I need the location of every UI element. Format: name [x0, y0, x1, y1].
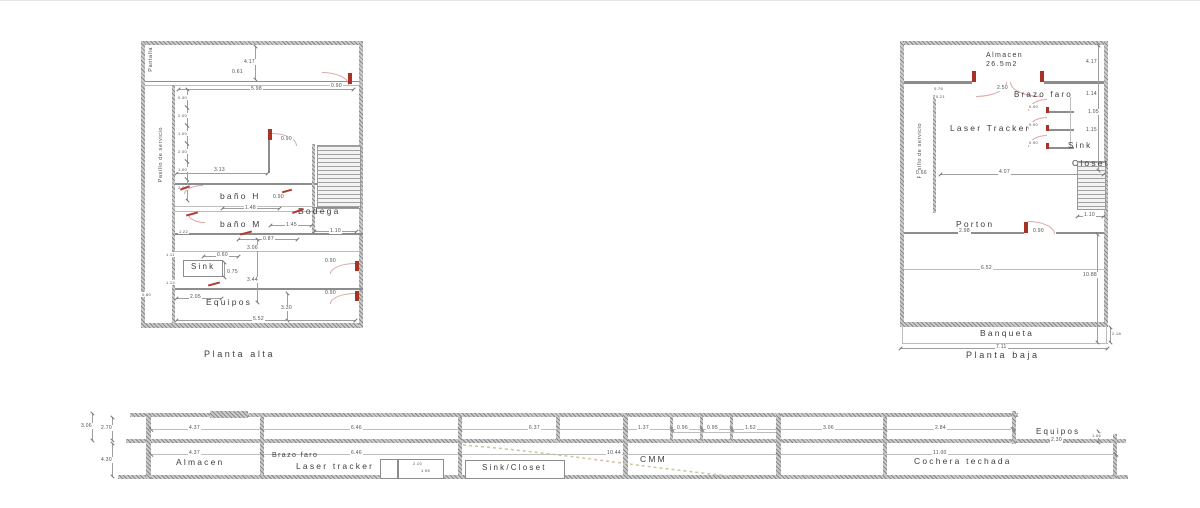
dim-label: 0.96	[676, 425, 689, 431]
dim-label: 0.90	[1028, 104, 1039, 109]
door-jamb	[348, 73, 352, 84]
dim-label: 1.05	[1087, 109, 1100, 115]
door-jamb	[355, 261, 359, 271]
dim-label: 1.22	[178, 229, 189, 234]
dim-label: 11.00	[932, 450, 948, 456]
door-jamb	[1046, 143, 1049, 149]
door-jamb	[1046, 107, 1049, 113]
dim-label: 1.48	[244, 205, 257, 211]
dim-label: 2.70	[100, 425, 113, 431]
drawing-sheet: 4.17 0.61 5.98 0.90 3.13 0.90 0.30 2.00 …	[0, 0, 1200, 508]
dim-label: 0.95	[706, 425, 719, 431]
dim-label: 0.90	[272, 194, 285, 200]
reference-spline	[0, 1, 1200, 508]
door-jamb	[972, 71, 976, 82]
dim-label: 0.21	[935, 94, 946, 99]
door-jamb	[1040, 71, 1044, 82]
dim-label: 2.18	[1111, 331, 1122, 336]
dim-label: 4.30	[100, 457, 113, 463]
dim-label: 1.11	[165, 252, 176, 257]
dim-label: 0.87	[262, 236, 275, 242]
dim-label: 0.90	[324, 258, 337, 264]
dim-label: 6.46	[350, 425, 363, 431]
dim-label: 1.45	[285, 222, 298, 228]
dim-label: 1.15	[1085, 127, 1098, 133]
dim-label: 1.06	[1091, 433, 1102, 438]
dim-label: 2.50	[996, 85, 1009, 91]
section-label-cochera: Cochera techada	[914, 457, 1012, 466]
dim-label: 1.10	[329, 228, 342, 234]
room-label-sink: Sink	[191, 262, 215, 271]
dim-label: 3.06	[246, 245, 259, 251]
dim-label: 10.88	[1082, 272, 1098, 278]
dim-label: 3.30	[280, 305, 293, 311]
dim-label: 1.52	[744, 425, 757, 431]
dim-label: 4.17	[1085, 59, 1098, 65]
dim-label: 0.90	[330, 83, 343, 89]
dim-label: 5.98	[250, 86, 263, 92]
section-label-almacen: Almacen	[176, 458, 224, 467]
dim-label: 1.10	[1083, 212, 1096, 218]
room-label-bano-m: baño M	[220, 220, 262, 229]
dim-label: 5.52	[252, 316, 265, 322]
dim-label: 0.90	[280, 136, 293, 142]
dim-label: 2.98	[958, 228, 971, 234]
dim-label: 2.84	[934, 425, 947, 431]
dim-label: 0.80	[141, 292, 152, 297]
room-label-brazo-faro: Brazo faro	[1014, 90, 1073, 99]
dim-label: 3.13	[213, 167, 226, 173]
door-jamb	[1024, 222, 1028, 233]
dim-label: 0.61	[231, 69, 244, 75]
dim-label: 0.76	[933, 86, 944, 91]
room-label-almacen: Almacen	[986, 51, 1023, 60]
dim-label: 0.90	[324, 290, 337, 296]
section-label-sink-closet: Sink/Closet	[482, 463, 547, 472]
dim-label: 7.11	[995, 344, 1008, 350]
dim-label: 1.95	[420, 468, 431, 473]
dim-label: 1.00	[177, 167, 188, 172]
dim-label: 1.00	[177, 131, 188, 136]
dim-label: 2.00	[177, 113, 188, 118]
dim-label: 3.06	[822, 425, 835, 431]
dim-label: 4.17	[243, 59, 256, 65]
dim-label: 2.00	[177, 149, 188, 154]
dim-label: 2.05	[189, 294, 202, 300]
dim-label: 0.60	[216, 252, 229, 258]
room-label-laser-tracker: Laser Tracker	[950, 124, 1031, 133]
dim-label: 0.30	[177, 95, 188, 100]
section-label-laser-tracker: Laser tracker	[296, 462, 374, 471]
dim-label: 6.37	[528, 425, 541, 431]
room-label-closet: Closet	[1072, 159, 1109, 168]
dim-label: 4.37	[188, 425, 201, 431]
dim-label: 2.30	[1050, 437, 1063, 443]
dim-label: 0.75	[226, 269, 239, 275]
dim-label: 0.66	[915, 170, 928, 176]
dim-label: 3.06	[80, 423, 93, 429]
dim-label: 2.10	[412, 461, 423, 466]
section-label-brazo-faro: Brazo faro	[272, 451, 318, 460]
dim-label: 1.14	[1085, 91, 1098, 97]
dim-label: 4.37	[188, 450, 201, 456]
dim-label: 10.44	[606, 450, 622, 456]
room-label-banqueta: Banqueta	[980, 329, 1034, 338]
dim-label: 1.14	[165, 280, 176, 285]
dim-label: 0.90	[1032, 228, 1045, 234]
section-label-equipos: Equipos	[1036, 427, 1080, 436]
room-label-bano-h: baño H	[220, 192, 261, 201]
room-label-sink: Sink	[1068, 141, 1092, 150]
dim-label: 6.46	[350, 450, 363, 456]
room-label-equipos: Equipos	[206, 298, 252, 307]
dim-label: 1.37	[637, 425, 650, 431]
section-label-cmm: CMM	[640, 455, 667, 464]
dim-label: 6.52	[980, 265, 993, 271]
dim-label: 0.90	[1028, 140, 1039, 145]
room-label-bodega: Bodega	[298, 207, 341, 216]
door-jamb	[1046, 125, 1049, 131]
door-jamb	[268, 129, 272, 140]
door-jamb	[355, 291, 359, 301]
dim-label: 4.07	[998, 169, 1011, 175]
room-label-almacen-area: 26.5m2	[986, 60, 1018, 69]
dim-label: 0.90	[1028, 122, 1039, 127]
dim-label: 3.44	[246, 277, 259, 283]
